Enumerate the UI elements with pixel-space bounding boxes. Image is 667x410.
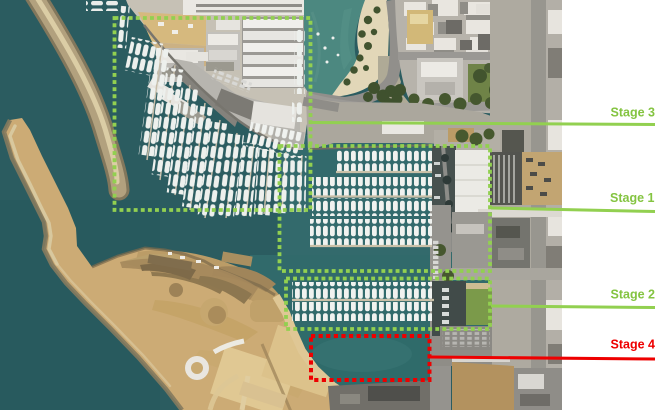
svg-text:Stage 1: Stage 1 <box>610 191 655 205</box>
svg-text:Stage 3: Stage 3 <box>611 106 656 120</box>
svg-text:Stage 2: Stage 2 <box>611 288 656 302</box>
svg-text:Stage 4: Stage 4 <box>611 338 656 352</box>
